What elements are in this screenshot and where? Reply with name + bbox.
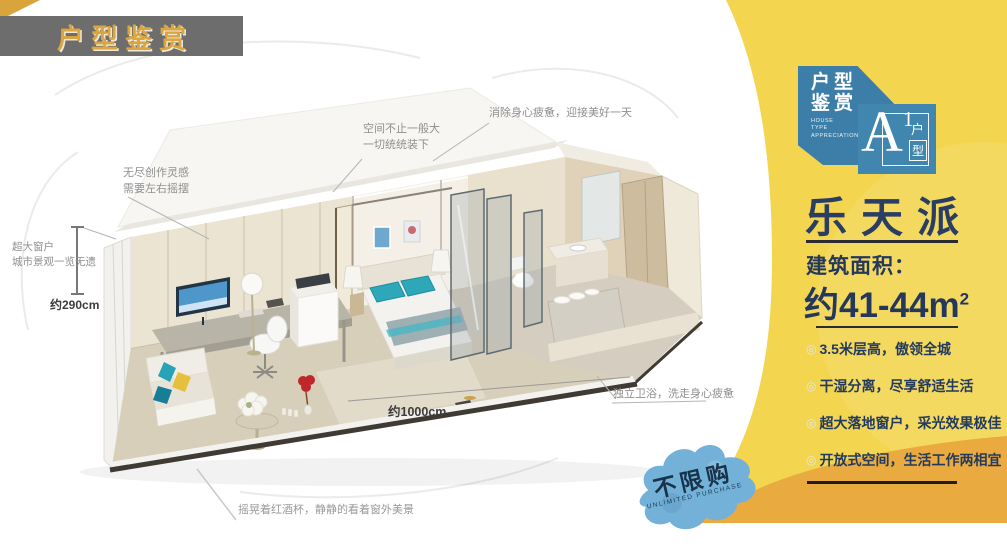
floor-lamp	[241, 273, 263, 295]
width-dimension-label: 约1000cm	[388, 401, 446, 420]
feature-list: ◎3.5米层高，傲领全城 ◎干湿分离，尽享舒适生活 ◎超大落地窗户，采光效果极佳…	[806, 339, 1004, 487]
house-type-poster: { "banner": { "title": "户型鉴赏" }, "badge"…	[0, 0, 1007, 523]
bedside-table	[350, 292, 364, 317]
callout-bathroom: 独立卫浴，洗走身心疲惫	[613, 387, 734, 403]
bathroom-mirror	[582, 171, 620, 246]
feature-text: 超大落地窗户，采光效果极佳	[819, 415, 1001, 431]
wall-art-blue	[374, 227, 390, 248]
page-banner: 户型鉴赏	[0, 16, 243, 56]
unit-name-title: 乐天派	[780, 184, 984, 245]
ring-bullet-icon: ◎	[806, 379, 816, 393]
feature-text: 3.5米层高，傲领全城	[819, 341, 950, 357]
divider-line	[806, 240, 958, 243]
unit-letter: A	[861, 98, 903, 165]
ring-bullet-icon: ◎	[806, 416, 816, 430]
unit-char-hu: 户	[911, 119, 924, 138]
feature-text: 干湿分离，尽享舒适生活	[819, 378, 973, 394]
area-sup: 2	[960, 289, 969, 308]
ring-bullet-icon: ◎	[806, 342, 816, 356]
divider-line	[807, 481, 957, 484]
badge-cn-title: 户型 鉴赏	[811, 73, 857, 115]
stamp-rotated: 不限购 UNLIMITED PURCHASE	[610, 424, 774, 543]
area-label: 建筑面积：	[806, 250, 916, 280]
callout-creative: 无尽创作灵感 需要左右摇摆	[123, 166, 233, 198]
badge-en-subtitle: HOUSE TYPE APPRECIATION	[811, 118, 859, 140]
banner-title: 户型鉴赏	[50, 17, 193, 56]
feature-item: ◎3.5米层高，傲领全城	[806, 339, 1004, 376]
unit-a1-badge: A 1 户 型	[858, 104, 936, 174]
callout-wine: 摇晃着红酒杯，静静的看着窗外美景	[238, 503, 414, 519]
callout-window: 超大窗户 城市景观一览无遗	[12, 240, 104, 270]
ring-bullet-icon: ◎	[806, 453, 816, 467]
callout-refresh: 消除身心疲惫，迎接美好一天	[489, 106, 632, 122]
feature-text: 开放式空间，生活工作两相宜	[819, 452, 1001, 468]
divider-line	[816, 326, 958, 328]
feature-item: ◎干湿分离，尽享舒适生活	[806, 376, 1004, 413]
height-dimension-label: 约290cm	[50, 296, 99, 313]
no-purchase-limit-stamp: 不限购 UNLIMITED PURCHASE	[618, 440, 766, 528]
area-value-text: 约41-44m	[804, 286, 960, 325]
feature-item: ◎超大落地窗户，采光效果极佳	[806, 413, 1004, 450]
callout-space: 空间不止一般大 一切统统装下	[363, 122, 478, 154]
area-value: 约41-44m2	[804, 277, 969, 328]
unit-char-xing: 型	[909, 140, 927, 161]
